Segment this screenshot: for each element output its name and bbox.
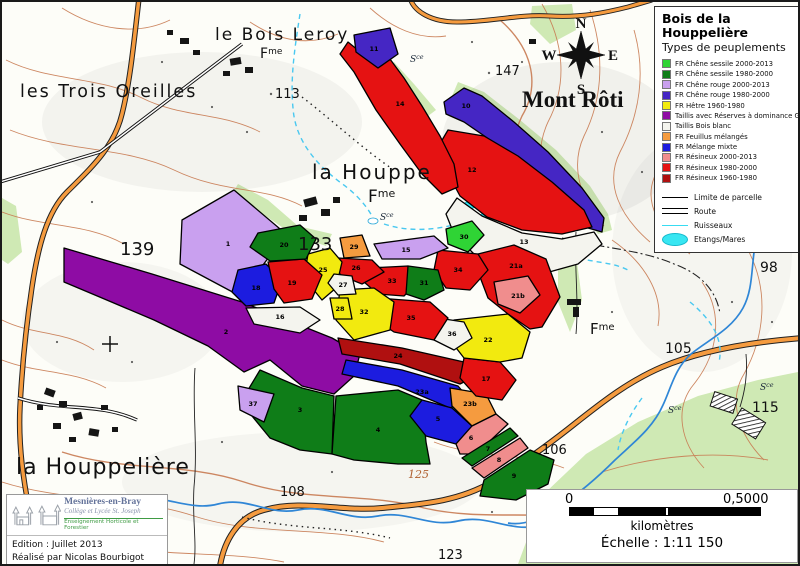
credits-edition: Edition : Juillet 2013 [12,539,162,552]
pond-ellipse-icon [662,233,688,246]
legend-item: FR Mélange mixte [662,142,792,152]
svg-text:W: W [542,48,557,64]
legend-item: FR Résineux 1960-1980 [662,173,792,183]
label-fme: Fme [590,320,615,338]
legend-symbol: Limite de parcelle [662,190,792,204]
svg-text:N: N [576,16,587,32]
parcel-label: 20 [279,241,289,249]
parcel-label: 6 [469,434,474,442]
parcel-label: 31 [419,279,429,287]
legend-item: FR Chêne rouge 2000-2013 [662,80,792,90]
parcel-label: 32 [359,308,368,316]
legend-panel: Bois de la Houppelière Types de peupleme… [654,6,800,253]
parcel-label: 24 [393,352,403,360]
castle-icon [11,503,35,527]
label-les-trois-oreilles: les Trois Oreilles [20,82,197,102]
color-swatch [662,59,671,68]
legend-subtitle: Types de peuplements [662,41,792,54]
parcel-label: 7 [486,445,491,453]
legend-item: FR Feuillus mélangés [662,131,792,141]
parcel-label: 19 [287,279,297,287]
parcel-limit-line-icon [662,197,688,198]
legend-item: FR Chêne sessile 2000-2013 [662,59,792,69]
credits-author: Réalisé par Nicolas Bourbigot [12,552,162,565]
parcel-label: 13 [519,238,528,246]
legend-symbol: Ruisseaux [662,218,792,232]
parcel-label: 28 [335,305,345,313]
parcel-label: 25 [318,266,328,274]
parcel-label: 15 [401,246,411,254]
parcel-label: 10 [461,102,471,110]
label-source: Sce [380,211,394,223]
scale-end: 0,5000 [723,492,769,507]
legend-title: Bois de la Houppelière [662,12,792,41]
stream-line-icon [662,225,688,226]
legend-symbol: Etangs/Mares [662,232,792,246]
color-swatch [662,132,671,141]
map-sheet: 1 2 3 4 5 6 7 8 9 10 11 12 13 14 15 16 1… [0,0,800,566]
svg-text:105: 105 [665,341,692,357]
castle-icon [38,503,62,527]
color-swatch [662,101,671,110]
scale-units: kilomètres [527,519,797,533]
credits-panel: Mesnières-en-Bray Collège et Lycée St. J… [6,494,168,566]
legend-item: Taillis Bois blanc [662,121,792,131]
color-swatch [662,80,671,89]
parcel-label: 14 [395,100,405,108]
scale-bar [569,507,761,516]
label-mont-roti: Mont Rôti [522,87,624,112]
parcel-label: 17 [481,375,490,383]
svg-text:98: 98 [760,260,778,276]
color-swatch [662,163,671,172]
parcel-label: 30 [459,233,469,241]
road-line-icon [662,208,688,214]
label-la-houppeliere: la Houppelière [16,455,190,480]
legend-item: FR Chêne sessile 1980-2000 [662,69,792,79]
svg-text:113: 113 [275,87,300,102]
color-swatch [662,143,671,152]
parcel-label: 36 [447,330,457,338]
parcel-label: 2 [224,328,229,336]
legend-item: FR Résineux 1980-2000 [662,163,792,173]
legend-item: FR Hêtre 1960-1980 [662,100,792,110]
parcel-label: 34 [453,266,463,274]
svg-text:133: 133 [298,234,332,255]
parcel-4 [332,390,430,464]
svg-text:139: 139 [120,239,154,260]
legend-items: FR Chêne sessile 2000-2013 FR Chêne sess… [662,59,792,184]
legend-item: FR Résineux 2000-2013 [662,152,792,162]
credits-school: Collège et Lycée St. Joseph [64,508,163,516]
parcel-label: 21b [511,292,525,300]
svg-text:115: 115 [752,400,779,416]
parcel-label: 3 [298,406,303,414]
parcel-label: 35 [406,314,416,322]
parcel-label: 37 [248,400,257,408]
legend-symbols: Limite de parcelle Route Ruisseaux Etang… [662,190,792,246]
parcel-label: 12 [467,166,476,174]
parcel-label: 23b [463,400,477,408]
svg-text:106: 106 [542,443,567,458]
svg-text:108: 108 [280,485,305,500]
parcel-label: 11 [369,45,379,53]
parcel-label: 5 [436,415,441,423]
parcel-label: 21a [509,262,522,270]
color-swatch [662,122,671,131]
parcel-label: 16 [275,313,285,321]
parcel-label: 1 [226,240,231,248]
color-swatch [662,153,671,162]
parcel-label: 26 [351,264,361,272]
svg-text:123: 123 [438,548,463,563]
label-source: Sce [410,53,424,65]
label-la-houppe: la Houppe [312,160,432,184]
svg-text:E: E [608,48,618,64]
scale-start: 0 [565,492,573,507]
color-swatch [662,91,671,100]
scale-bar-panel: 0 0,5000 kilomètres Échelle : 1:11 150 [526,489,798,563]
label-fme: Fme [368,187,395,207]
legend-item: Taillis avec Réserves à dominance GB [662,111,792,121]
parcel-label: 8 [497,456,502,464]
svg-text:125: 125 [408,468,429,481]
parcel-label: 22 [483,336,492,344]
parcel-label: 29 [349,243,359,251]
color-swatch [662,70,671,79]
label-le-bois-leroy: le Bois Leroy [215,25,349,45]
credits-tagline: Enseignement Horticole et Forestier [64,518,163,532]
parcel-label: 33 [387,277,396,285]
parcel-label: 23a [415,388,428,396]
parcel-label: 9 [512,472,517,480]
parcel-label: 4 [376,426,381,434]
color-swatch [662,111,671,120]
scale-ratio: Échelle : 1:11 150 [527,535,797,551]
parcel-label: 27 [338,281,347,289]
svg-text:147: 147 [495,64,520,79]
legend-symbol: Route [662,204,792,218]
color-swatch [662,174,671,183]
legend-item: FR Chêne rouge 1980-2000 [662,90,792,100]
parcel-label: 18 [251,284,261,292]
